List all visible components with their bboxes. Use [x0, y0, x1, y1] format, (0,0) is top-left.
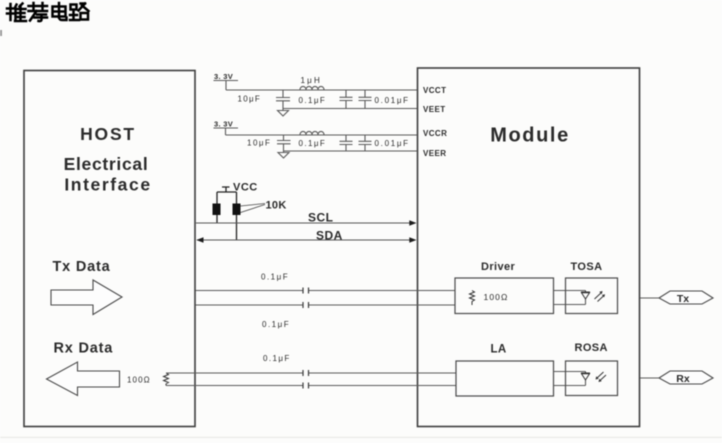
svg-text:SDA: SDA — [316, 229, 343, 243]
svg-text:100Ω: 100Ω — [127, 376, 151, 385]
svg-text:3. 3V: 3. 3V — [214, 120, 233, 129]
svg-text:10K: 10K — [266, 200, 287, 212]
svg-text:VCC: VCC — [233, 182, 258, 194]
svg-text:TOSA: TOSA — [571, 261, 603, 273]
svg-text:HOST: HOST — [80, 124, 136, 144]
svg-text:ROSA: ROSA — [575, 342, 608, 354]
svg-text:Tx: Tx — [677, 293, 689, 305]
svg-text:VCCR: VCCR — [423, 129, 447, 138]
svg-text:0.01μF: 0.01μF — [375, 96, 410, 105]
svg-text:VEET: VEET — [423, 105, 446, 114]
svg-text:0.1μF: 0.1μF — [262, 320, 290, 329]
svg-text:VEER: VEER — [423, 149, 446, 158]
svg-text:0.1μF: 0.1μF — [263, 354, 291, 363]
svg-text:Rx: Rx — [676, 373, 690, 385]
svg-text:Driver: Driver — [481, 261, 516, 273]
svg-text:0.01μF: 0.01μF — [375, 139, 410, 148]
svg-text:SCL: SCL — [308, 211, 334, 225]
svg-text:0.1μF: 0.1μF — [299, 139, 327, 148]
svg-text:3. 3V: 3. 3V — [214, 72, 233, 81]
svg-text:0.1μF: 0.1μF — [261, 273, 289, 282]
svg-text:Interface: Interface — [64, 175, 151, 195]
svg-text:LA: LA — [491, 344, 507, 356]
svg-text:10μF: 10μF — [238, 95, 262, 104]
svg-text:Tx Data: Tx Data — [53, 259, 111, 275]
svg-text:Module: Module — [490, 125, 570, 147]
svg-text:1μH: 1μH — [301, 76, 322, 85]
svg-text:Electrical: Electrical — [64, 154, 149, 174]
svg-text:VCCT: VCCT — [423, 86, 446, 95]
svg-text:0.1μF: 0.1μF — [299, 96, 327, 105]
svg-text:Rx Data: Rx Data — [54, 341, 114, 357]
svg-text:100Ω: 100Ω — [484, 292, 509, 302]
svg-text:10μF: 10μF — [247, 139, 271, 148]
